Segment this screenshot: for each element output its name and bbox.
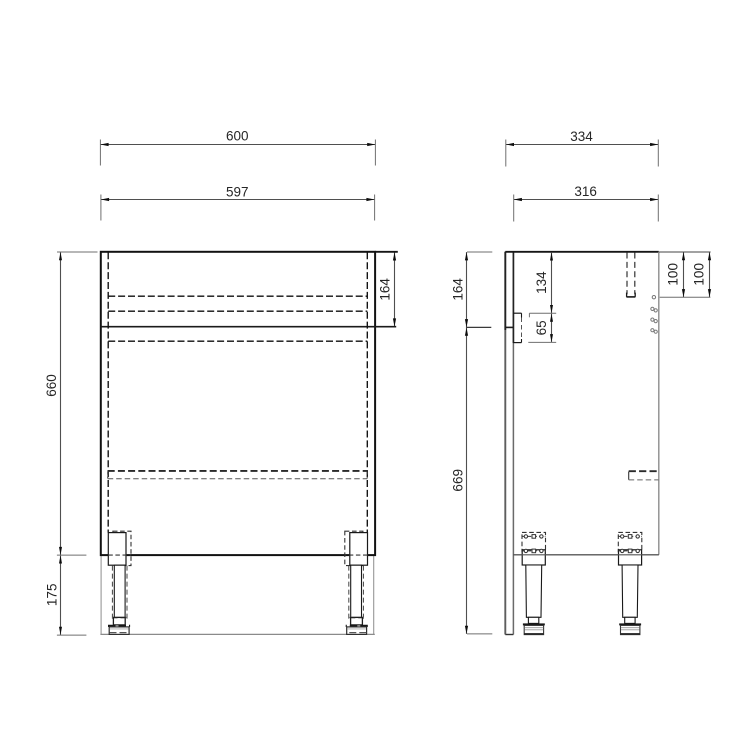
svg-text:164: 164 <box>378 278 393 301</box>
svg-text:134: 134 <box>534 271 549 294</box>
svg-text:660: 660 <box>44 374 59 397</box>
svg-text:175: 175 <box>44 584 59 607</box>
svg-text:164: 164 <box>451 278 466 301</box>
svg-text:100: 100 <box>666 263 681 286</box>
svg-text:100: 100 <box>691 263 706 286</box>
svg-text:597: 597 <box>226 185 249 200</box>
svg-text:316: 316 <box>574 184 597 199</box>
svg-text:334: 334 <box>570 129 593 144</box>
svg-text:600: 600 <box>226 129 249 144</box>
svg-text:669: 669 <box>451 469 466 492</box>
svg-text:65: 65 <box>534 320 549 335</box>
